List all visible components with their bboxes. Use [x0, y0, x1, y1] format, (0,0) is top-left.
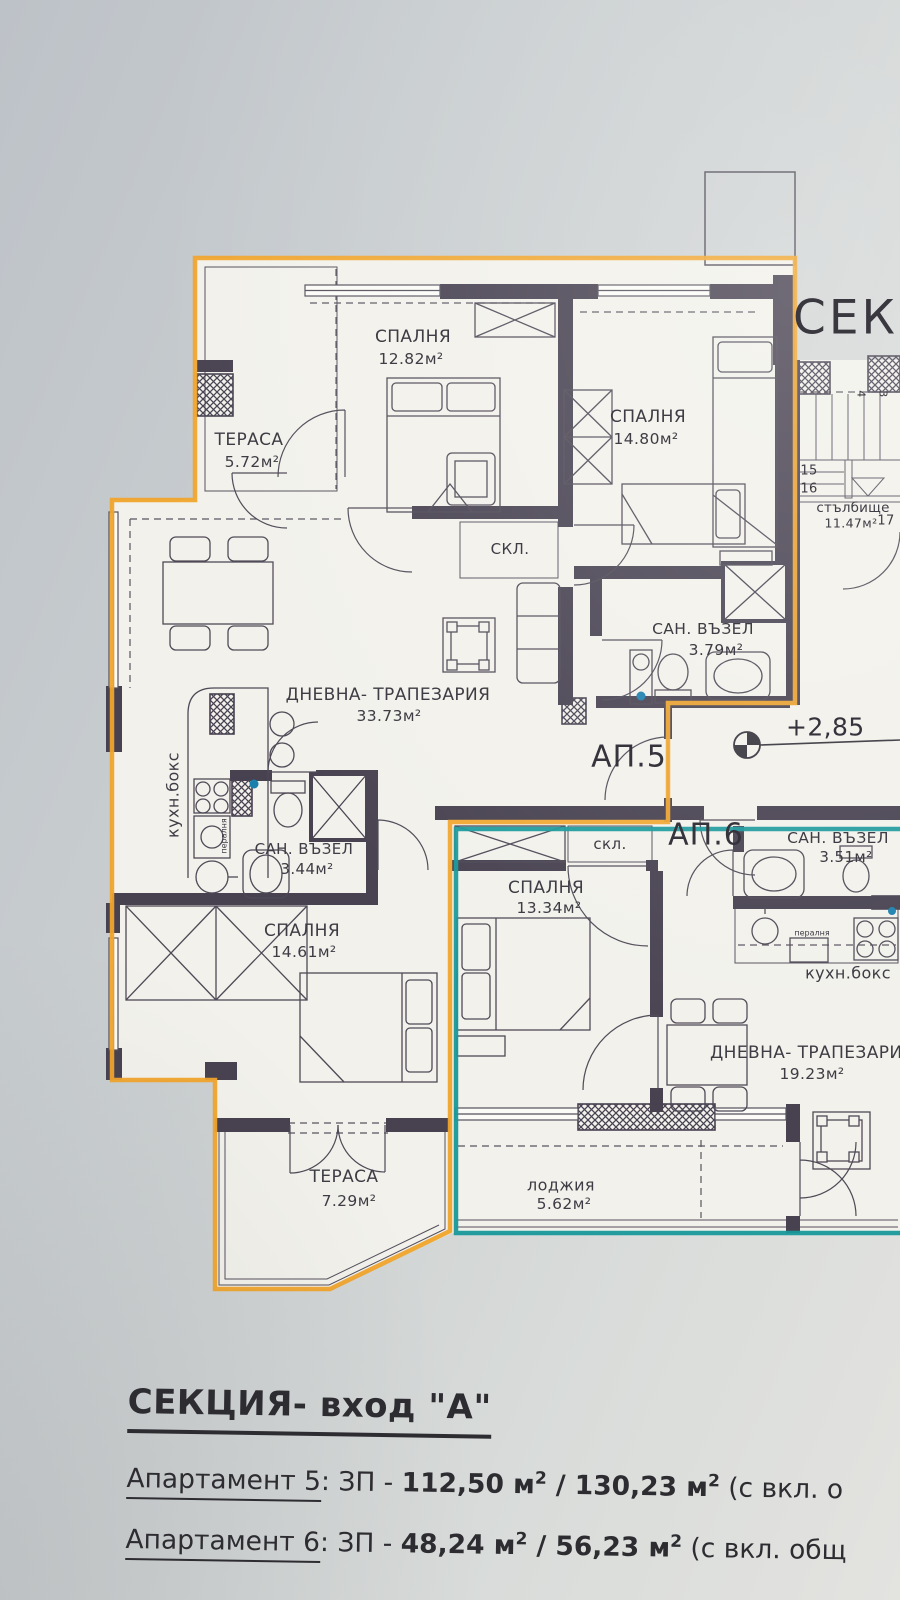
room-area-bedroom-top: 12.82м²: [378, 350, 443, 368]
legend-ap6-sep: : ЗП -: [320, 1527, 401, 1559]
legend-ap5-slash: /: [546, 1470, 575, 1501]
room-label-bedroom-ap6: СПАЛНЯ: [508, 878, 584, 898]
legend-ap6-sup1: 2: [515, 1529, 527, 1549]
stair-step-16: 16: [800, 482, 817, 497]
room-label-bath2-ap5: САН. ВЪЗЕЛ: [255, 840, 354, 858]
stair-step-15: 15: [800, 464, 817, 479]
room-area-bath2-ap5: 3.44м²: [280, 860, 333, 878]
room-area-terrace-top: 5.72м²: [225, 453, 280, 471]
stair-step-4: 4: [855, 390, 868, 397]
section-heading-partial: СЕКЦ: [793, 291, 900, 346]
stairwell-area: 11.47м²: [824, 516, 877, 531]
stair-step-3: 3: [877, 390, 890, 397]
room-area-bath-ap6: 3.51м²: [819, 848, 872, 866]
room-label-bath-ap6: САН. ВЪЗЕЛ: [787, 829, 889, 847]
room-label-bedroom-top: СПАЛНЯ: [375, 327, 451, 347]
room-area-bath-ap5: 3.79м²: [689, 641, 744, 659]
room-label-kitchen-ap5: кухн.бокс: [164, 752, 183, 838]
legend-ap6-slash: /: [527, 1530, 556, 1561]
legend-ap6-area1: 48,24 м: [400, 1528, 515, 1561]
legend-ap6-sup2: 2: [670, 1532, 682, 1552]
room-label-bedroom-right: СПАЛНЯ: [610, 407, 686, 427]
legend-ap6-tail: (с вкл. общ: [682, 1533, 847, 1567]
label-laundry-ap5: пералня: [220, 818, 229, 853]
room-area-living-ap5: 33.73м²: [356, 707, 421, 725]
room-area-bedroom-right: 14.80м²: [613, 430, 678, 448]
room-label-terrace-top: ТЕРАСА: [215, 430, 284, 450]
roof-shaft-outline: [705, 172, 795, 265]
apartment5-label: АП.5: [591, 740, 667, 775]
legend: СЕКЦИЯ- вход "А" Апартамент 5: ЗП - 112,…: [125, 1382, 900, 1568]
legend-ap5-tail: (с вкл. о: [720, 1472, 844, 1505]
stair-step-17: 17: [877, 514, 894, 529]
room-label-bedroom-bottom: СПАЛНЯ: [264, 921, 340, 941]
legend-ap5-label: Апартамент 5: [126, 1463, 321, 1502]
room-label-terrace-bottom: ТЕРАСА: [310, 1167, 379, 1187]
room-area-bedroom-ap6: 13.34м²: [516, 899, 581, 917]
legend-ap5-sep: : ЗП -: [321, 1466, 402, 1498]
legend-ap5-sup1: 2: [535, 1469, 547, 1489]
legend-row-apartment5: Апартамент 5: ЗП - 112,50 м2 / 130,23 м2…: [126, 1463, 900, 1508]
floorplan-drawing: [0, 0, 900, 1600]
room-label-living-ap6: ДНЕВНА- ТРАПЕЗАРИЯ: [710, 1043, 900, 1063]
room-label-storage-ap5: СКЛ.: [491, 540, 530, 558]
legend-ap5-area1: 112,50 м: [401, 1467, 535, 1500]
legend-ap5-sup2: 2: [708, 1471, 720, 1491]
legend-ap6-label: Апартамент 6: [125, 1524, 320, 1563]
legend-ap6-area2: 56,23 м: [555, 1531, 670, 1564]
legend-ap5-area2: 130,23 м: [575, 1470, 709, 1503]
room-area-terrace-bottom: 7.29м²: [322, 1192, 377, 1210]
floorplan-photo: СПАЛНЯ 12.82м² ТЕРАСА 5.72м² СПАЛНЯ 14.8…: [0, 0, 900, 1600]
apartment6-label: АП.6: [668, 818, 744, 853]
room-area-loggia: 5.62м²: [537, 1195, 592, 1213]
legend-title: СЕКЦИЯ- вход "А": [127, 1382, 492, 1439]
room-area-living-ap6: 19.23м²: [779, 1065, 844, 1083]
room-area-bedroom-bottom: 14.61м²: [271, 943, 336, 961]
room-label-bath-ap5: САН. ВЪЗЕЛ: [652, 620, 754, 638]
room-label-living-ap5: ДНЕВНА- ТРАПЕЗАРИЯ: [286, 685, 491, 705]
elevation-text: +2,85: [786, 713, 865, 742]
label-laundry-ap6: пералня: [794, 929, 829, 938]
room-label-storage-ap6: скл.: [593, 835, 626, 853]
room-label-loggia: лоджия: [527, 1176, 595, 1195]
room-label-kitchen-ap6: кухн.бокс: [805, 964, 891, 983]
